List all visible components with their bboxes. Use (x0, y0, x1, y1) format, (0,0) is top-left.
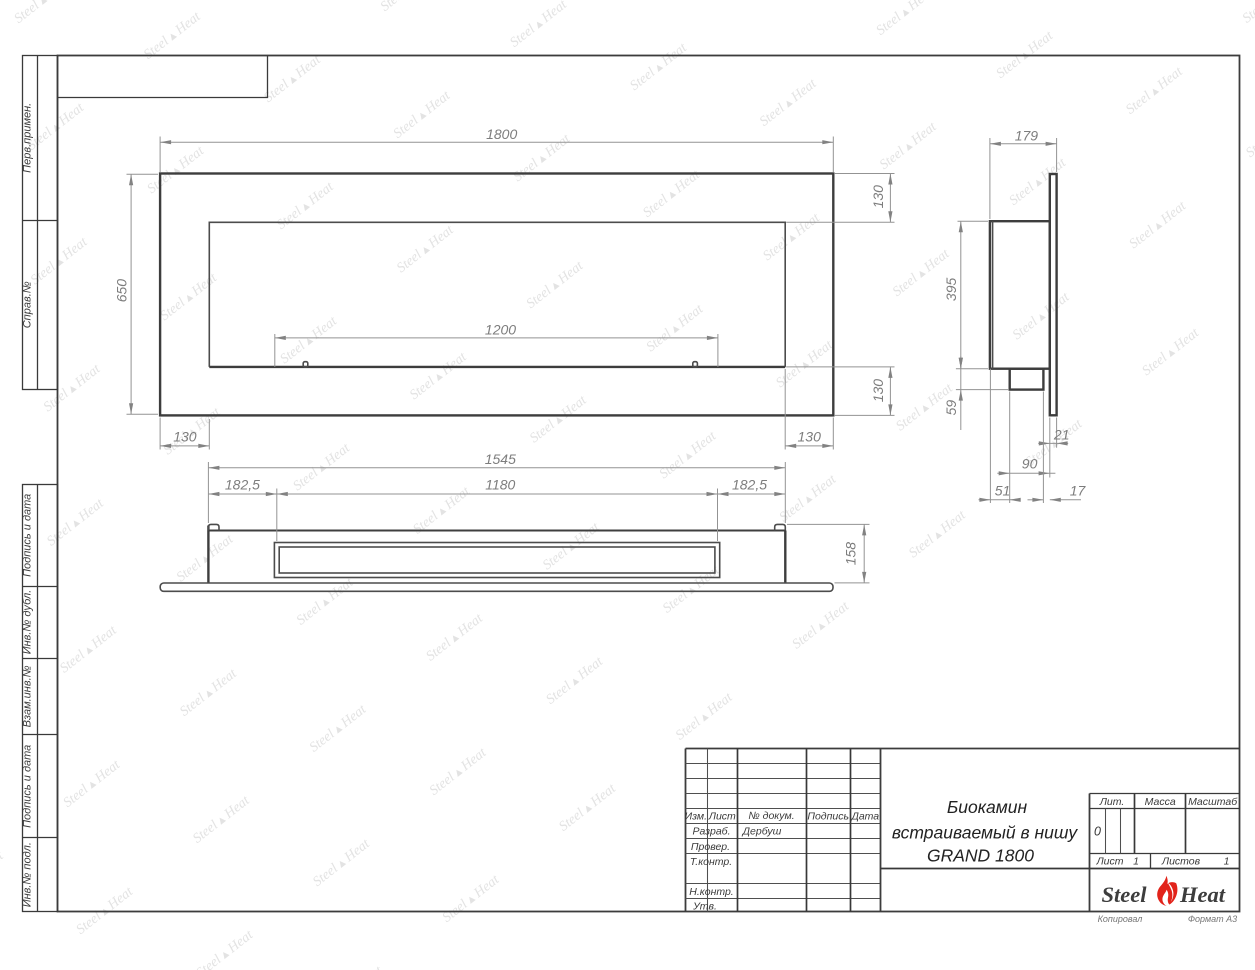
svg-text:№ докум.: № докум. (748, 810, 794, 822)
svg-text:Инв.№ дубл.: Инв.№ дубл. (22, 590, 34, 655)
svg-text:Н.контр.: Н.контр. (689, 886, 733, 898)
svg-text:1: 1 (1133, 856, 1139, 868)
svg-text:Лит.: Лит. (1099, 796, 1125, 808)
svg-text:Масштаб: Масштаб (1188, 796, 1238, 808)
svg-text:59: 59 (943, 400, 959, 416)
svg-text:90: 90 (1022, 455, 1038, 471)
svg-text:Взам.инв.№: Взам.инв.№ (22, 665, 34, 727)
svg-text:179: 179 (1015, 127, 1039, 143)
svg-text:1180: 1180 (485, 477, 515, 493)
svg-text:Дербуш: Дербуш (742, 826, 782, 838)
svg-text:0: 0 (1094, 825, 1101, 839)
svg-text:1: 1 (1224, 856, 1230, 868)
svg-text:Подпись и дата: Подпись и дата (22, 745, 34, 828)
svg-text:395: 395 (943, 278, 959, 302)
svg-text:21: 21 (1053, 426, 1070, 442)
svg-text:Т.контр.: Т.контр. (690, 856, 732, 868)
svg-text:130: 130 (870, 185, 886, 209)
svg-text:Листов: Листов (1161, 856, 1201, 868)
svg-text:Heat: Heat (1179, 882, 1226, 907)
svg-text:Steel: Steel (1102, 882, 1148, 907)
svg-text:Изм.: Изм. (685, 811, 707, 823)
svg-text:182,5: 182,5 (225, 477, 260, 493)
svg-text:Справ.№: Справ.№ (22, 281, 34, 328)
svg-text:51: 51 (995, 483, 1011, 499)
svg-text:182,5: 182,5 (732, 477, 767, 493)
svg-text:Провер.: Провер. (691, 841, 730, 853)
svg-text:130: 130 (798, 428, 822, 444)
svg-text:Утв.: Утв. (692, 901, 717, 913)
svg-text:Перв.примен.: Перв.примен. (22, 103, 34, 173)
svg-text:650: 650 (114, 279, 130, 303)
svg-text:Инв.№ подл.: Инв.№ подл. (22, 842, 34, 907)
svg-text:Подпись: Подпись (807, 811, 849, 823)
svg-text:130: 130 (173, 428, 197, 444)
svg-text:Биокамин: Биокамин (947, 797, 1028, 817)
svg-text:1200: 1200 (485, 322, 516, 338)
svg-text:Лист: Лист (1095, 856, 1123, 868)
svg-text:Разраб.: Разраб. (693, 826, 731, 838)
svg-text:встраиваемый в нишу: встраиваемый в нишу (892, 823, 1078, 843)
svg-text:Формат A3: Формат A3 (1188, 914, 1237, 924)
svg-text:1800: 1800 (486, 126, 517, 142)
svg-text:Подпись и дата: Подпись и дата (22, 494, 34, 577)
svg-text:17: 17 (1070, 483, 1087, 499)
svg-text:1545: 1545 (485, 451, 516, 467)
svg-text:Дата: Дата (850, 811, 879, 823)
svg-text:Копировал: Копировал (1098, 914, 1143, 924)
svg-text:Лист: Лист (708, 811, 736, 823)
svg-text:Масса: Масса (1145, 796, 1176, 808)
svg-text:GRAND 1800: GRAND 1800 (927, 846, 1034, 866)
svg-text:130: 130 (870, 379, 886, 403)
svg-text:158: 158 (843, 542, 859, 566)
